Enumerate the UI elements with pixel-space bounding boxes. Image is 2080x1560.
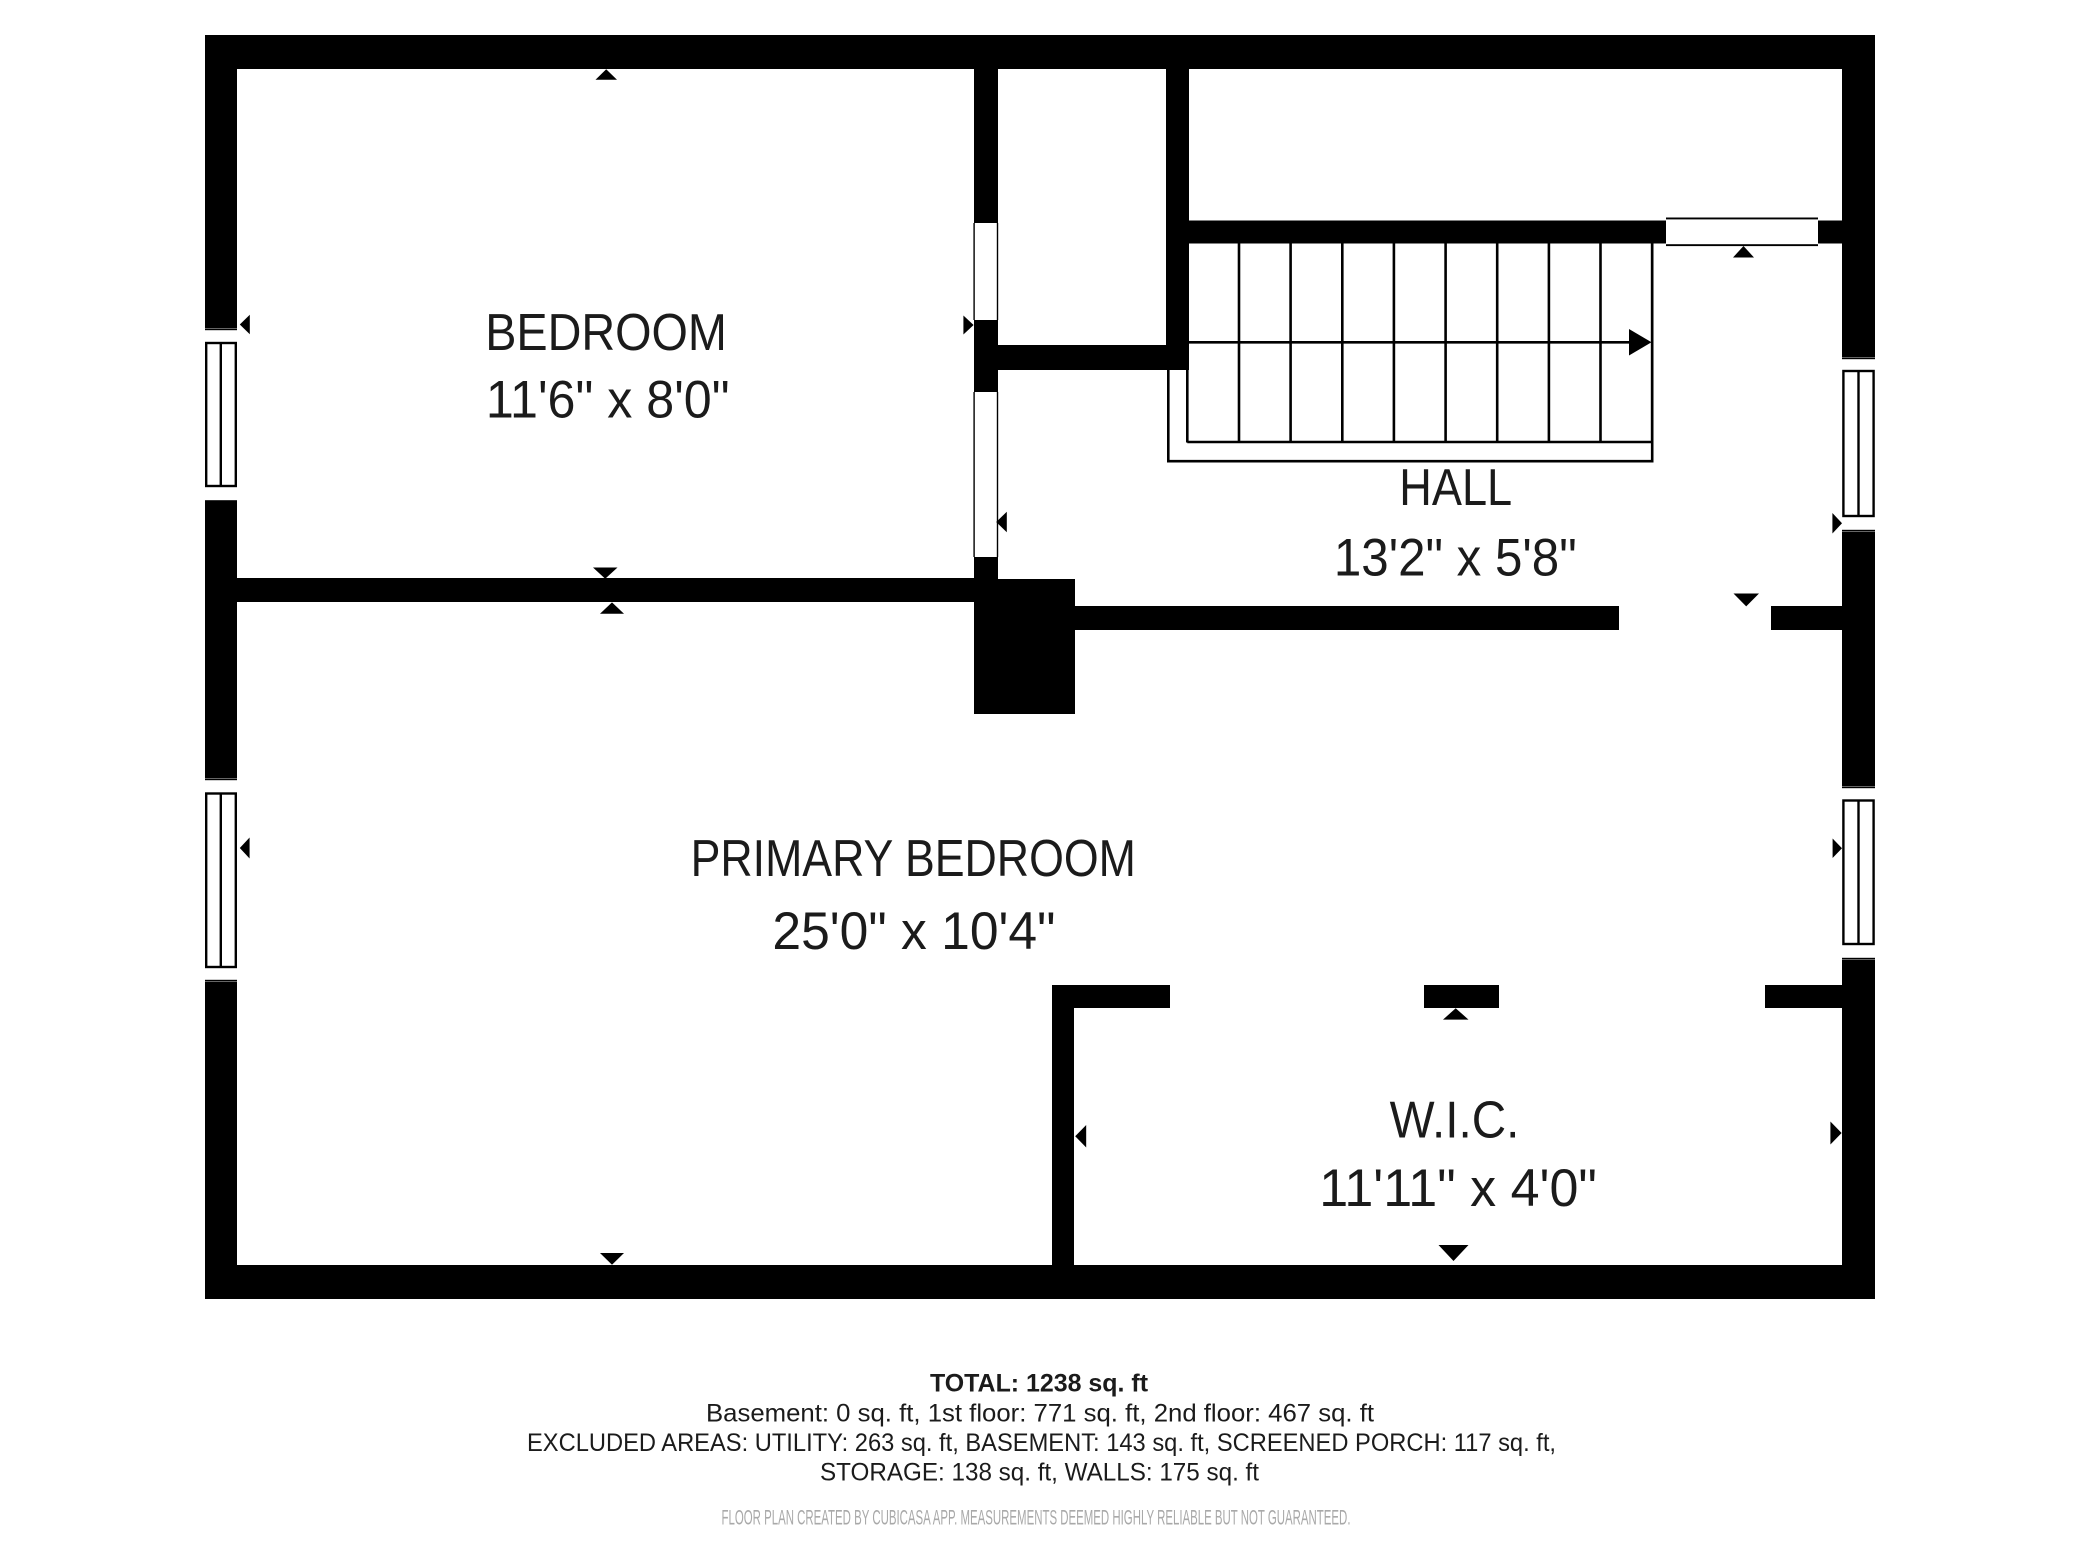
svg-text:11'6" x 8'0": 11'6" x 8'0" bbox=[486, 371, 730, 430]
svg-text:EXCLUDED AREAS: UTILITY: 263 s: EXCLUDED AREAS: UTILITY: 263 sq. ft, BAS… bbox=[527, 1429, 1556, 1457]
svg-text:W.I.C.: W.I.C. bbox=[1390, 1092, 1520, 1150]
svg-text:PRIMARY BEDROOM: PRIMARY BEDROOM bbox=[691, 830, 1136, 888]
svg-text:Basement: 0 sq. ft, 1st floor:: Basement: 0 sq. ft, 1st floor: 771 sq. f… bbox=[706, 1400, 1374, 1428]
svg-text:FLOOR PLAN CREATED BY CUBICASA: FLOOR PLAN CREATED BY CUBICASA APP. MEAS… bbox=[722, 1507, 1351, 1530]
svg-text:25'0" x 10'4": 25'0" x 10'4" bbox=[772, 902, 1055, 961]
svg-text:STORAGE: 138 sq. ft, WALLS: 17: STORAGE: 138 sq. ft, WALLS: 175 sq. ft bbox=[820, 1459, 1259, 1487]
svg-text:11'11" x 4'0": 11'11" x 4'0" bbox=[1319, 1159, 1597, 1218]
svg-text:13'2" x 5'8": 13'2" x 5'8" bbox=[1334, 529, 1577, 588]
svg-text:HALL: HALL bbox=[1399, 459, 1512, 517]
svg-text:BEDROOM: BEDROOM bbox=[485, 304, 727, 362]
svg-text:TOTAL: 1238 sq. ft: TOTAL: 1238 sq. ft bbox=[930, 1370, 1149, 1398]
